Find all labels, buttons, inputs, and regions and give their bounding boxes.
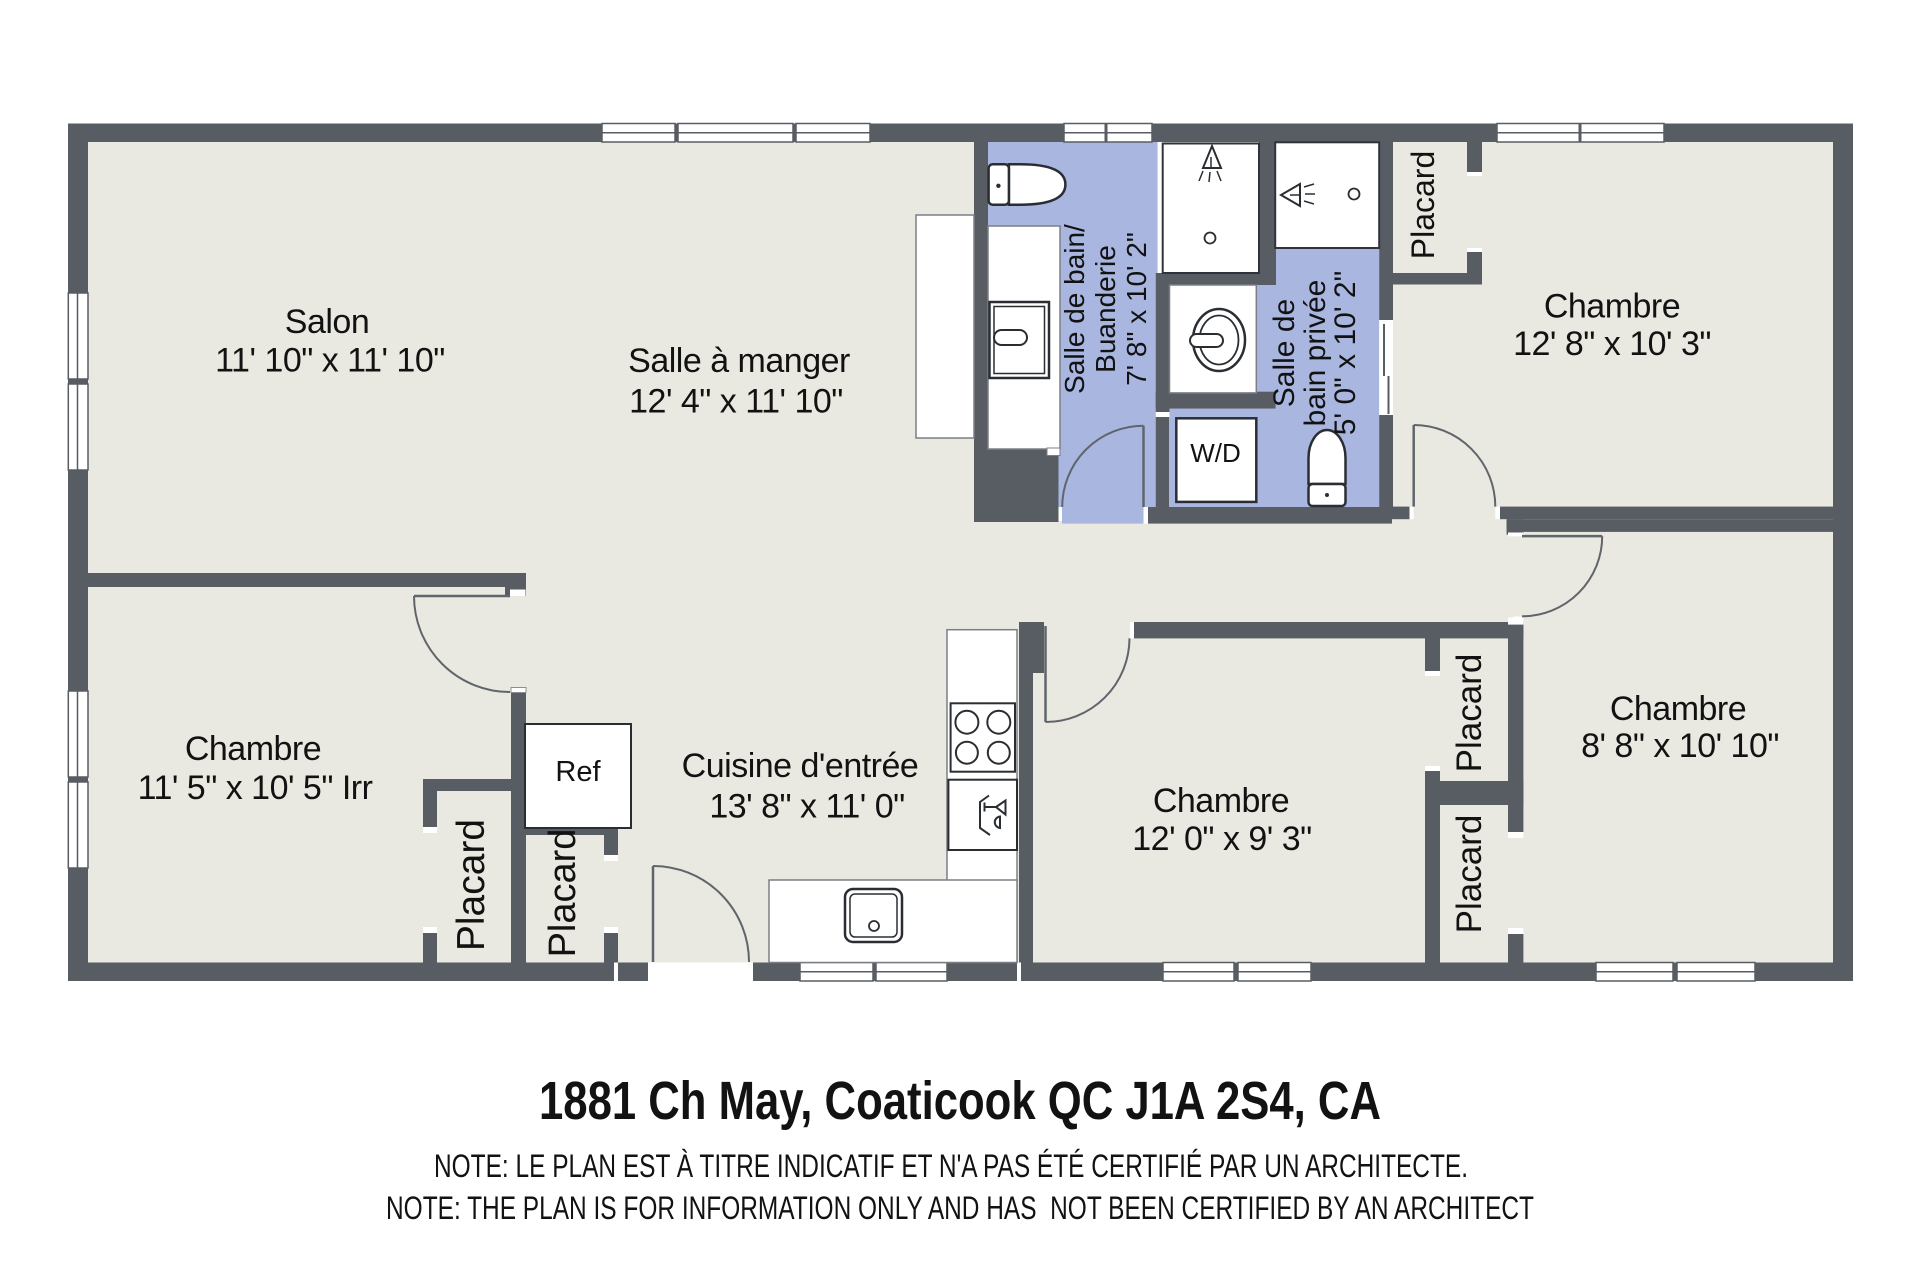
svg-text:Salle de bain/: Salle de bain/: [1059, 224, 1090, 394]
svg-text:12' 4" x 11' 10": 12' 4" x 11' 10": [629, 383, 843, 421]
svg-text:Chambre: Chambre: [1153, 782, 1289, 820]
svg-text:NOTE: THE PLAN IS FOR INFORMAT: NOTE: THE PLAN IS FOR INFORMATION ONLY A…: [386, 1190, 1534, 1226]
svg-text:5' 0" x 10' 2": 5' 0" x 10' 2": [1329, 271, 1362, 436]
svg-text:Placard: Placard: [1450, 654, 1489, 773]
svg-text:Chambre: Chambre: [185, 730, 321, 768]
svg-text:12' 8" x 10' 3": 12' 8" x 10' 3": [1513, 325, 1711, 363]
svg-text:13' 8" x 11' 0": 13' 8" x 11' 0": [709, 788, 904, 826]
svg-text:Salle de: Salle de: [1268, 299, 1301, 407]
svg-text:8' 8" x 10' 10": 8' 8" x 10' 10": [1581, 727, 1779, 765]
svg-text:Placard: Placard: [542, 829, 584, 958]
svg-text:Chambre: Chambre: [1544, 288, 1680, 326]
svg-text:Buanderie: Buanderie: [1090, 245, 1121, 373]
svg-text:NOTE: LE PLAN EST À TITRE INDI: NOTE: LE PLAN EST À TITRE INDICATIF ET N…: [434, 1148, 1468, 1184]
svg-text:Ref: Ref: [555, 756, 601, 788]
svg-text:W/D: W/D: [1190, 438, 1241, 468]
svg-text:7' 8" x 10' 2": 7' 8" x 10' 2": [1121, 232, 1152, 386]
svg-text:11' 10" x 11' 10": 11' 10" x 11' 10": [215, 342, 445, 380]
svg-text:Placard: Placard: [1405, 151, 1441, 260]
svg-text:Cuisine d'entrée: Cuisine d'entrée: [682, 747, 919, 785]
svg-text:11' 5" x 10' 5" Irr: 11' 5" x 10' 5" Irr: [138, 769, 373, 807]
svg-text:Placard: Placard: [1450, 815, 1489, 934]
svg-text:Chambre: Chambre: [1610, 690, 1746, 728]
svg-text:Salon: Salon: [285, 303, 369, 341]
svg-text:Placard: Placard: [450, 819, 493, 951]
svg-text:1881 Ch May, Coaticook QC J1A: 1881 Ch May, Coaticook QC J1A 2S4, CA: [539, 1071, 1381, 1131]
svg-text:12' 0" x 9' 3": 12' 0" x 9' 3": [1132, 820, 1311, 858]
svg-text:Salle à manger: Salle à manger: [628, 342, 850, 380]
svg-text:bain privée: bain privée: [1299, 280, 1332, 427]
